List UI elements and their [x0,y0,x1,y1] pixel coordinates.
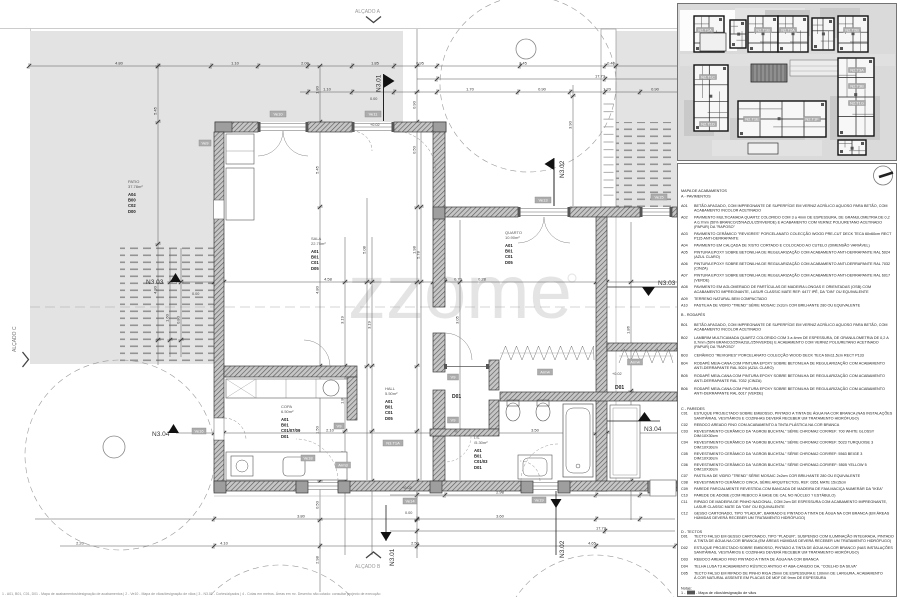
svg-text:A04: A04 [128,192,136,197]
svg-text:C02: C02 [128,203,136,208]
svg-text:0.28: 0.28 [478,277,487,282]
svg-text:PAVIMENTO EM AGLOMERADO DE PAR: PAVIMENTO EM AGLOMERADO DE PARTÍCULAS DE… [694,285,871,289]
svg-text:17.73: 17.73 [595,74,606,79]
svg-text:N3.04: N3.04 [644,426,662,433]
svg-text:ACABAMENTO INCOLOR ACETINADO: ACABAMENTO INCOLOR ACETINADO [694,209,761,213]
svg-text:CERÂMICO "REVIGRES" PORCELANAT: CERÂMICO "REVIGRES" PORCELANATO COLECÇÃO… [694,352,864,357]
svg-text:C11: C11 [681,500,688,504]
svg-text:C05: C05 [681,452,688,456]
svg-text:N2.T1D: N2.T1D [701,122,715,127]
svg-text:C - PAREDES: C - PAREDES [681,407,705,411]
svg-text:A01: A01 [311,249,319,254]
svg-text:Ve16: Ve16 [194,429,204,434]
svg-text:B01: B01 [311,255,319,260]
svg-text:(CINZA): (CINZA) [694,267,708,271]
svg-text:+0.02: +0.02 [612,372,622,376]
svg-text:ALÇADO B: ALÇADO B [355,564,381,570]
svg-text:0.40: 0.40 [607,61,616,66]
svg-text:C10: C10 [681,494,688,498]
svg-text:D05: D05 [385,416,393,421]
svg-text:REBOCO AREADO FINO PINTADO A T: REBOCO AREADO FINO PINTADO A TINTA DE ÁG… [694,558,819,562]
svg-text:N2.T1B: N2.T1B [756,28,770,33]
svg-text:V9: V9 [337,424,343,429]
svg-text:A03: A03 [681,232,688,236]
svg-text:Notas:: Notas: [681,586,692,590]
svg-text:Ve15: Ve15 [654,195,664,200]
svg-text:RIPADO DE MADEIRA DE PINHO NAC: RIPADO DE MADEIRA DE PINHO NACIONAL, COM… [694,500,887,504]
svg-text:REVESTIMENTO CERÂMICO DA "AGRO: REVESTIMENTO CERÂMICO DA "AGROB BUCHTAL"… [694,428,875,433]
svg-text:DIM:10X30cm: DIM:10X30cm [694,445,718,449]
svg-text:N2.T3B: N2.T3B [850,84,864,89]
svg-text:A01: A01 [474,448,482,453]
svg-text:ANTI-DERRAPANTE RAL 7032 (CINZ: ANTI-DERRAPANTE RAL 7032 (CINZA) [694,379,762,383]
svg-text:A08: A08 [681,285,688,289]
svg-text:1.85: 1.85 [371,61,380,66]
svg-text:D05: D05 [311,266,319,271]
svg-text:B - RODAPÉS: B - RODAPÉS [681,312,706,317]
svg-text:1.86: 1.86 [626,325,631,334]
svg-text:- Mapa de vãos/designação de v: - Mapa de vãos/designação de vãos [696,591,756,595]
svg-text:ANTI-DERRAPANTE RAL 5024 (AZUL: ANTI-DERRAPANTE RAL 5024 (AZUL CLARO) [694,366,774,370]
svg-text:N2.T2B: N2.T2B [845,28,859,33]
svg-text:PAVIMENTO CERÂMICO "REVIGRES": PAVIMENTO CERÂMICO "REVIGRES" PORCELANAT… [694,231,892,236]
svg-text:4.65: 4.65 [588,541,597,546]
svg-text:A09: A09 [681,297,688,301]
svg-text:D04: D04 [681,565,688,569]
svg-text:B05: B05 [681,374,688,378]
svg-text:BETÃO AFAGADO, COM IMPREGNANTE: BETÃO AFAGADO, COM IMPREGNANTE DE SUPERF… [694,203,888,208]
svg-text:ALÇADO A: ALÇADO A [355,9,381,15]
svg-text:1 -: 1 - [681,591,686,595]
svg-text:C01: C01 [385,410,393,415]
svg-text:(PAPUR) DA "RAPOSO": (PAPUR) DA "RAPOSO" [694,345,736,349]
svg-text:1.10: 1.10 [231,61,240,66]
svg-text:A02: A02 [681,216,688,220]
svg-text:Arm4: Arm4 [540,370,550,375]
svg-text:D05: D05 [505,260,513,265]
svg-text:TECTO FALSO EM GESSO CARTONADO: TECTO FALSO EM GESSO CARTONADO, TIPO "PL… [694,533,894,538]
svg-text:N3.03: N3.03 [146,279,164,286]
svg-text:D02: D02 [681,546,688,550]
svg-text:0.90: 0.90 [412,100,417,109]
svg-text:A04: A04 [681,244,688,248]
svg-text:A05: A05 [681,250,688,254]
svg-text:C01/03: C01/03 [474,459,488,464]
svg-text:PASTILHA DE VIDRO "TREND" SÉRI: PASTILHA DE VIDRO "TREND" SÉRIE MOSAIC 2… [694,473,861,478]
svg-text:ANTI-DERRAPANTE RAL 6017 (VERD: ANTI-DERRAPANTE RAL 6017 (VERDE) [694,392,764,396]
svg-text:Ve11: Ve11 [369,112,379,117]
svg-text:A 0,7mm (50% BRANCO/25%AZUL/25: A 0,7mm (50% BRANCO/25%AZUL/25%VERDE) E … [694,220,882,224]
svg-text:PAVIMENTO EM CALÇADA DE XISTO: PAVIMENTO EM CALÇADA DE XISTO CORTADO E … [694,243,871,248]
svg-text:A TINTA DE ÁGUA NA COR BRANCA: A TINTA DE ÁGUA NA COR BRANCA (EM ÁREAS … [694,538,892,543]
svg-text:N2.T2A: N2.T2A [781,28,795,33]
svg-text:2.20: 2.20 [76,541,85,546]
svg-text:+0.02: +0.02 [370,123,380,127]
svg-text:5.50m²: 5.50m² [385,391,398,396]
svg-text:PINTURA EPOXY SOBRE BETONILHA: PINTURA EPOXY SOBRE BETONILHA DE REGULAR… [694,273,890,278]
svg-text:N2.T1E: N2.T1E [745,117,759,122]
svg-text:B02: B02 [681,336,688,340]
svg-text:Arm3: Arm3 [338,463,348,468]
svg-text:B04: B04 [681,361,688,365]
svg-text:BETÃO AFAGADO, COM IMPREGNANTE: BETÃO AFAGADO, COM IMPREGNANTE DE SUPERF… [694,322,888,327]
svg-text:SANITÁRIAS, VESTIÁRIOS E COZIN: SANITÁRIAS, VESTIÁRIOS E COZINHAS DEVERÁ… [694,415,859,420]
svg-text:4.80: 4.80 [315,285,320,294]
svg-text:C09: C09 [681,487,688,491]
svg-text:3.80: 3.80 [297,514,306,519]
svg-text:A10: A10 [681,304,688,308]
svg-text:3.19: 3.19 [340,315,345,324]
svg-text:N3.04: N3.04 [152,431,170,438]
svg-text:A01: A01 [681,204,688,208]
svg-text:PAVIMENTO MULTICAMADA QUARTZ C: PAVIMENTO MULTICAMADA QUARTZ COLORIDO CO… [694,216,890,220]
svg-text:N3.03: N3.03 [658,280,676,287]
svg-text:B01: B01 [681,323,688,327]
svg-text:3.90: 3.90 [568,120,573,129]
svg-text:0.50: 0.50 [412,145,417,154]
svg-text:N3.02: N3.02 [559,160,566,178]
svg-text:A01: A01 [505,243,513,248]
svg-text:TELHA LUSA T3 ACABAMENTO RÚSTI: TELHA LUSA T3 ACABAMENTO RÚSTICO ANTIGO … [694,564,858,569]
svg-text:2.98: 2.98 [315,555,320,564]
svg-text:N2.T3A: N2.T3A [850,68,864,73]
svg-text:A07: A07 [681,274,688,278]
svg-text:ESTUQUE PROJECTADO SOBRE EMBOS: ESTUQUE PROJECTADO SOBRE EMBOSSO, PINTAD… [694,411,893,416]
svg-text:N2.T1A: N2.T1A [698,28,712,33]
svg-text:B03: B03 [681,353,688,357]
svg-text:D01: D01 [281,434,289,439]
svg-text:A01: A01 [281,417,289,422]
svg-text:0.00: 0.00 [192,292,199,296]
svg-text:0.00: 0.00 [370,97,377,101]
svg-text:RODAPÉ MEIA-CANA COM PINTURA E: RODAPÉ MEIA-CANA COM PINTURA EPOXY SOBRE… [694,373,885,378]
svg-text:RODAPÉ MEIA-CANA COM PINTURA E: RODAPÉ MEIA-CANA COM PINTURA EPOXY SOBRE… [694,360,885,365]
svg-text:TERRENO NATURAL BEM COMPACTADO: TERRENO NATURAL BEM COMPACTADO [694,297,767,301]
svg-text:Ve18: Ve18 [303,456,313,461]
svg-text:PASTILHA DE VIDRO "TREND" SÉRI: PASTILHA DE VIDRO "TREND" SÉRIE MOSAIC 2… [694,303,861,308]
svg-text:/5.30m²: /5.30m² [474,440,488,445]
svg-text:LAMBRIM MULTICAMADA QUARTZ COL: LAMBRIM MULTICAMADA QUARTZ COLORIDO COM … [694,336,889,340]
svg-text:(AZUL CLARO): (AZUL CLARO) [694,255,721,259]
svg-text:C12: C12 [681,511,688,515]
svg-text:0.50: 0.50 [315,500,320,509]
svg-text:0.80: 0.80 [176,315,181,324]
svg-text:(VERDE): (VERDE) [694,278,710,282]
svg-text:C04: C04 [681,441,688,445]
svg-text:1.80: 1.80 [315,85,320,94]
svg-text:D01: D01 [452,394,461,400]
svg-text:LASUR CLASSIC MATE DA "DIN" OU: LASUR CLASSIC MATE DA "DIN" OU EQUIVALEN… [694,505,785,509]
svg-text:A - PAVIMENTOS: A - PAVIMENTOS [681,195,711,199]
svg-text:5.78: 5.78 [416,250,421,259]
svg-text:B06: B06 [681,387,688,391]
svg-text:B01: B01 [385,405,393,410]
svg-text:1.60: 1.60 [165,313,170,322]
svg-text:N2.T1G: N2.T1G [850,101,864,106]
svg-text:5.45: 5.45 [153,106,158,115]
svg-text:4.10: 4.10 [220,541,229,546]
svg-text:REBOCO AREADO FINO COM ACABAME: REBOCO AREADO FINO COM ACABAMENTO A TINT… [694,423,840,427]
svg-text:2.10: 2.10 [326,428,335,433]
svg-text:10.90m²: 10.90m² [505,235,520,240]
svg-text:B01: B01 [281,423,289,428]
svg-text:1.20: 1.20 [603,87,612,92]
svg-text:17.73: 17.73 [596,526,607,531]
svg-text:REVESTIMENTO CERÂMICO CINCA, S: REVESTIMENTO CERÂMICO CINCA, SÉRIE ARQUI… [694,480,846,485]
svg-text:C01: C01 [311,260,319,265]
svg-text:SANITÁRIAS, VESTIÁRIOS E COZIN: SANITÁRIAS, VESTIÁRIOS E COZINHAS DEVERÁ… [694,550,859,555]
svg-text:5.08: 5.08 [362,245,367,254]
svg-text:HÚMIDAS DEVERÁ RECEBER UM TRAT: HÚMIDAS DEVERÁ RECEBER UM TRATAMENTO HID… [694,515,806,520]
svg-text:3.60: 3.60 [496,514,505,519]
svg-text:5.45: 5.45 [315,165,320,174]
svg-text:ALÇADO C: ALÇADO C [12,326,18,352]
svg-text:DIM:10X30cm: DIM:10X30cm [694,434,718,438]
svg-text:TECTO FALSO EM RIPADO DE PINHO: TECTO FALSO EM RIPADO DE PINHO RIGA 25mm… [694,571,883,575]
svg-text:4.58: 4.58 [324,277,333,282]
svg-text:P115 ANTI-DERRAPANTE: P115 ANTI-DERRAPANTE [694,237,739,241]
svg-text:C02: C02 [681,423,688,427]
svg-text:2.00: 2.00 [301,61,310,66]
svg-text:REVESTIMENTO CERÂMICO DA "AGRO: REVESTIMENTO CERÂMICO DA "AGROB BUCHTAL"… [694,451,862,456]
svg-text:Ve10: Ve10 [273,112,283,117]
svg-text:A01: A01 [385,399,393,404]
svg-text:4.80: 4.80 [153,285,158,294]
svg-text:N2.T1F: N2.T1F [805,117,819,122]
svg-text:Ve9: Ve9 [202,141,210,146]
svg-text:D - TECTOS: D - TECTOS [681,530,703,534]
svg-text:A06: A06 [681,262,688,266]
svg-text:REVESTIMENTO CERÂMICO DA "AGRO: REVESTIMENTO CERÂMICO DA "AGROB BUCHTAL"… [694,440,873,445]
svg-text:0.00: 0.00 [405,511,412,515]
svg-text:22.75m²: 22.75m² [311,241,326,246]
svg-text:D01: D01 [681,534,688,538]
svg-text:4.80: 4.80 [115,61,124,66]
svg-text:C01/07/09: C01/07/09 [281,428,301,433]
svg-text:À COR NATURAL ASSENTE EM PLACA: À COR NATURAL ASSENTE EM PLACAS DE MDF D… [694,576,827,580]
svg-text:C06: C06 [681,463,688,467]
svg-text:MAPA DE ACABAMENTOS: MAPA DE ACABAMENTOS [681,189,727,193]
svg-text:GESSO CARTONADO, TIPO "PLADUR": GESSO CARTONADO, TIPO "PLADUR", BARRADO … [694,511,890,515]
svg-text:N3.01: N3.01 [376,74,383,92]
svg-text:D05: D05 [681,571,688,575]
svg-text:RODAPÉ MEIA-CANA COM PINTURA E: RODAPÉ MEIA-CANA COM PINTURA EPOXY SOBRE… [694,386,885,391]
svg-text:1.10: 1.10 [323,87,332,92]
svg-text:+0.02: +0.02 [402,486,412,490]
svg-text:B00: B00 [128,198,136,203]
svg-text:PINTURA EPOXY SOBRE BETONILHA: PINTURA EPOXY SOBRE BETONILHA DE REGULAR… [694,261,890,266]
svg-text:0,7mm (50% BRANCO/25%AZUL/25%V: 0,7mm (50% BRANCO/25%AZUL/25%VERDE) E AC… [694,341,879,345]
svg-text:0.70: 0.70 [454,277,463,282]
svg-text:C01: C01 [505,254,513,259]
svg-text:0.90: 0.90 [651,87,660,92]
svg-text:DIM:10X30cm: DIM:10X30cm [694,468,718,472]
svg-text:D01: D01 [615,385,624,391]
svg-text:3.05: 3.05 [455,315,460,324]
svg-text:PAREDE PARCIALMENTE REVESTIDA: PAREDE PARCIALMENTE REVESTIDA COM BANCAD… [694,487,884,491]
svg-text:D00: D00 [128,209,136,214]
svg-text:N3.02: N3.02 [559,540,566,558]
svg-text:C07: C07 [681,474,688,478]
svg-text:0.90: 0.90 [538,87,547,92]
svg-text:(PAPUR) DA "RAPOSO": (PAPUR) DA "RAPOSO" [694,225,736,229]
svg-text:B01: B01 [505,249,513,254]
svg-text:N2.T1C: N2.T1C [701,75,715,80]
svg-text:3.50: 3.50 [531,428,540,433]
svg-text:PINTURA EPOXY SOBRE BETONILHA: PINTURA EPOXY SOBRE BETONILHA DE REGULAR… [694,249,890,254]
svg-text:ESTUQUE PROJECTADO SOBRE EMBOS: ESTUQUE PROJECTADO SOBRE EMBOSSO, PINTAD… [694,545,893,550]
svg-text:6.50m²: 6.50m² [281,409,294,414]
svg-text:C01: C01 [681,412,688,416]
svg-text:2.50: 2.50 [411,541,420,546]
svg-text:B01: B01 [474,454,482,459]
svg-text:V9: V9 [451,375,457,380]
svg-text:V9: V9 [451,418,457,423]
svg-text:DIM:10X30cm: DIM:10X30cm [694,457,718,461]
svg-text:Ve19: Ve19 [534,498,544,503]
svg-text:D01: D01 [474,465,482,470]
svg-text:C03: C03 [681,429,688,433]
svg-text:N3.01: N3.01 [389,548,396,566]
svg-text:C08: C08 [681,481,688,485]
svg-text:1 - A01, B01, C01, D01 - Mapa: 1 - A01, B01, C01, D01 - Mapa de acabame… [2,592,380,596]
svg-text:N3.T1A: N3.T1A [386,441,400,446]
svg-text:1.70: 1.70 [466,87,475,92]
svg-text:3.45: 3.45 [519,61,528,66]
svg-text:0.95: 0.95 [416,61,425,66]
svg-text:ACABAMENTO IMPREGNANTE, LASUR: ACABAMENTO IMPREGNANTE, LASUR CLASSIC MA… [694,289,869,294]
svg-text:Ve13: Ve13 [538,198,548,203]
svg-text:ACABAMENTO INCOLOR ACETINADO: ACABAMENTO INCOLOR ACETINADO [694,328,761,332]
svg-text:Ve14: Ve14 [405,499,415,504]
svg-text:1.50: 1.50 [315,425,320,434]
svg-text:37.78m²: 37.78m² [128,184,143,189]
svg-text:D03: D03 [681,558,688,562]
svg-text:Arm4: Arm4 [630,360,640,365]
svg-text:REVESTIMENTO CERÂMICO DA "AGRO: REVESTIMENTO CERÂMICO DA "AGROB BUCHTAL"… [694,462,867,467]
svg-text:PAREDE DE ADOBE (COM REBOCO À: PAREDE DE ADOBE (COM REBOCO À BASE DE CA… [694,493,836,498]
